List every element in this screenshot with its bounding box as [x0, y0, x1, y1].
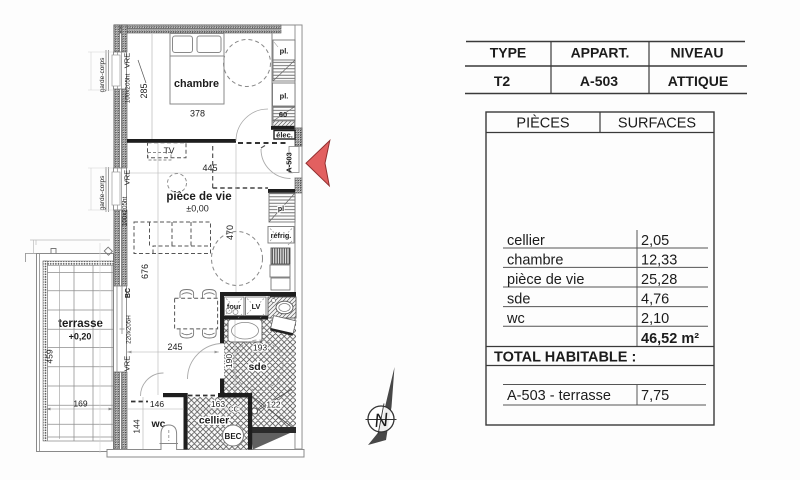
svg-text:chambre: chambre — [174, 78, 219, 90]
svg-text:285: 285 — [139, 83, 149, 98]
svg-text:676: 676 — [140, 264, 150, 279]
svg-text:cellier: cellier — [199, 415, 229, 427]
svg-text:sde: sde — [507, 292, 530, 308]
svg-text:146: 146 — [150, 399, 164, 409]
svg-text:pl: pl — [278, 206, 284, 213]
svg-text:445: 445 — [202, 163, 217, 173]
svg-text:CC: CC — [228, 405, 239, 414]
svg-text:PIÈCES: PIÈCES — [516, 115, 569, 132]
svg-text:cellier: cellier — [507, 233, 545, 249]
svg-text:T2: T2 — [494, 73, 511, 89]
svg-text:169: 169 — [73, 399, 87, 409]
svg-text:réfrig.: réfrig. — [271, 231, 292, 240]
svg-text:TOTAL HABITABLE :: TOTAL HABITABLE : — [494, 350, 636, 366]
svg-text:N: N — [373, 410, 389, 432]
svg-text:pièce de vie: pièce de vie — [507, 272, 584, 288]
svg-text:SURFACES: SURFACES — [618, 116, 696, 132]
svg-text:chambre: chambre — [507, 253, 563, 269]
svg-text:VRE: VRE — [123, 53, 132, 68]
svg-text:2,05: 2,05 — [641, 233, 669, 249]
svg-text:25,28: 25,28 — [641, 272, 677, 288]
svg-text:VRE: VRE — [123, 170, 132, 185]
svg-text:459: 459 — [45, 349, 55, 363]
svg-text:A-503: A-503 — [285, 152, 294, 172]
svg-text:100x205ht: 100x205ht — [125, 74, 132, 104]
svg-text:APPART.: APPART. — [571, 45, 630, 61]
svg-text:BEC: BEC — [225, 432, 242, 441]
svg-text:7,75: 7,75 — [641, 388, 669, 404]
svg-text:garde-corps: garde-corps — [99, 175, 106, 210]
svg-text:245: 245 — [167, 342, 182, 352]
svg-text:A-503 - terrasse: A-503 - terrasse — [507, 388, 611, 404]
svg-text:pièce de vie: pièce de vie — [166, 191, 231, 203]
svg-text:VRE: VRE — [123, 356, 132, 371]
svg-text:élec.: élec. — [276, 131, 293, 140]
svg-text:122: 122 — [266, 400, 280, 410]
svg-text:±0,00: ±0,00 — [186, 204, 208, 214]
svg-text:sde: sde — [248, 361, 266, 373]
svg-text:wc: wc — [506, 311, 525, 327]
svg-text:46,52 m²: 46,52 m² — [641, 331, 699, 347]
svg-text:163: 163 — [211, 399, 225, 409]
svg-text:378: 378 — [190, 109, 205, 119]
svg-text:100x205ht: 100x205ht — [122, 197, 129, 227]
svg-text:190: 190 — [224, 354, 234, 368]
svg-text:4,76: 4,76 — [641, 292, 669, 308]
svg-text:12,33: 12,33 — [641, 253, 677, 269]
svg-text:+0,20: +0,20 — [69, 332, 92, 342]
svg-text:144: 144 — [132, 419, 142, 433]
svg-text:TV: TV — [164, 146, 175, 156]
svg-text:LV: LV — [252, 302, 261, 311]
svg-text:470: 470 — [225, 225, 235, 240]
svg-text:220x205H: 220x205H — [126, 315, 133, 344]
svg-text:NIVEAU: NIVEAU — [671, 45, 724, 61]
svg-text:193: 193 — [253, 343, 267, 353]
svg-text:ATTIQUE: ATTIQUE — [668, 73, 728, 89]
svg-text:pl.: pl. — [280, 92, 289, 101]
svg-text:terrasse: terrasse — [58, 318, 103, 330]
svg-text:BC: BC — [125, 288, 132, 298]
svg-text:2,10: 2,10 — [641, 311, 669, 327]
svg-text:pl.: pl. — [280, 47, 289, 56]
svg-text:A-503: A-503 — [580, 73, 618, 89]
svg-text:TYPE: TYPE — [490, 45, 527, 61]
svg-text:garde-corps: garde-corps — [99, 57, 106, 92]
